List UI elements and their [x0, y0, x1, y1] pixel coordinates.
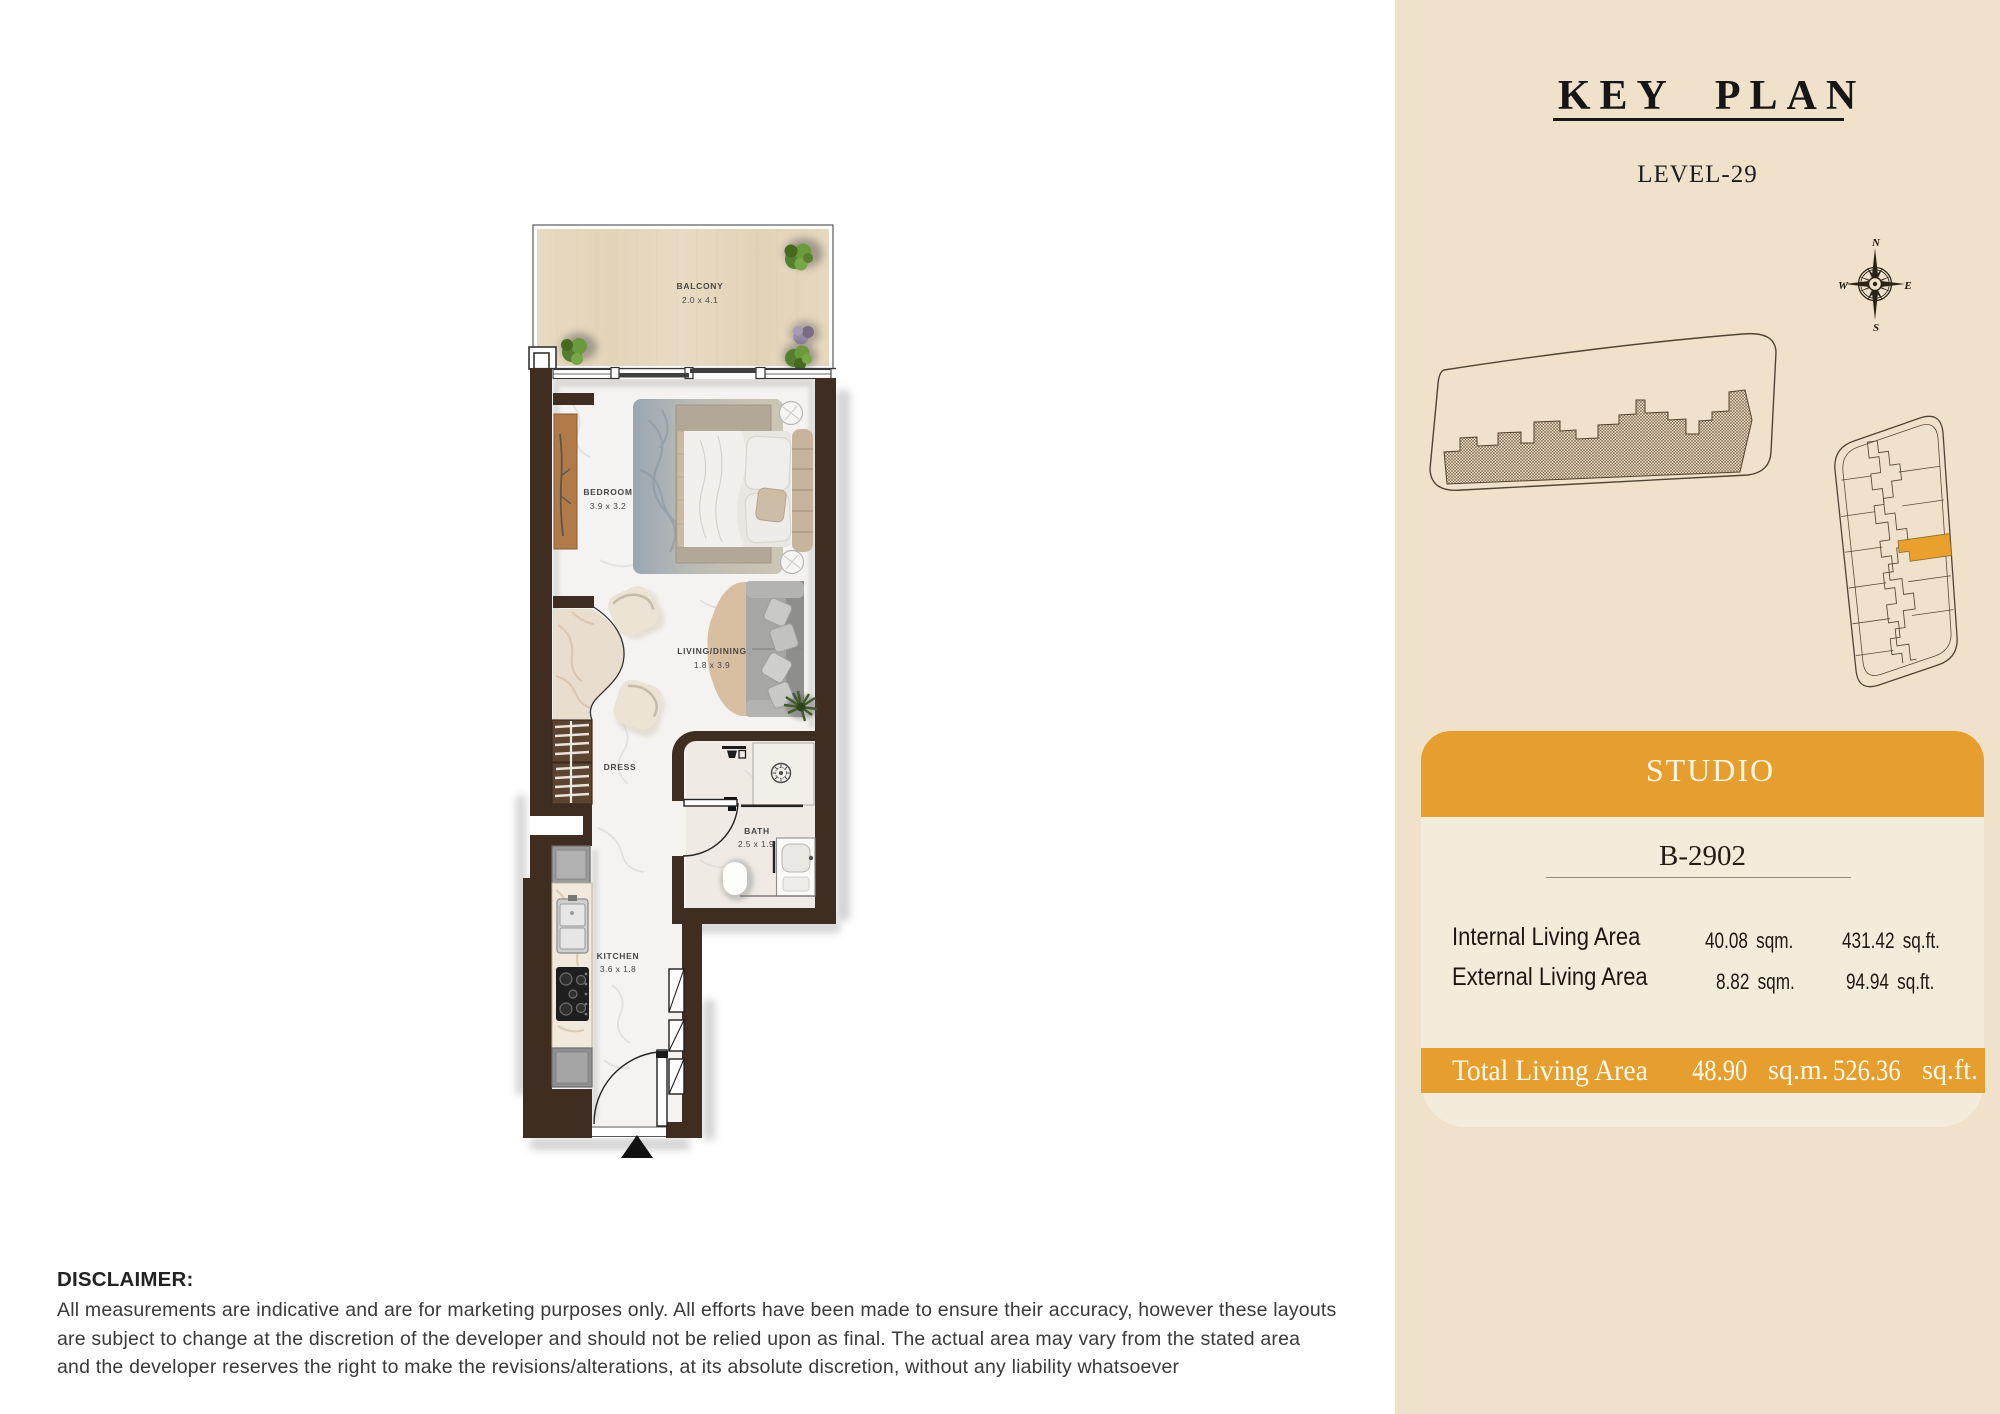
svg-text:LIVING/DINING: LIVING/DINING — [677, 646, 747, 656]
svg-text:E: E — [1903, 280, 1911, 292]
svg-text:DRESS: DRESS — [604, 762, 637, 772]
svg-text:BATH: BATH — [744, 826, 770, 836]
svg-text:KITCHEN: KITCHEN — [597, 951, 640, 961]
svg-text:W: W — [1838, 280, 1849, 292]
svg-text:3.6 x 1.8: 3.6 x 1.8 — [600, 964, 636, 974]
svg-text:N: N — [1871, 237, 1881, 249]
svg-text:1.8 x 3.9: 1.8 x 3.9 — [694, 660, 730, 670]
svg-text:2.0 x 4.1: 2.0 x 4.1 — [682, 295, 718, 305]
svg-text:BALCONY: BALCONY — [677, 281, 724, 291]
svg-text:3.9 x 3.2: 3.9 x 3.2 — [590, 501, 626, 511]
svg-text:BEDROOM: BEDROOM — [583, 487, 632, 497]
svg-text:2.5 x 1.9: 2.5 x 1.9 — [738, 839, 774, 849]
svg-text:S: S — [1873, 322, 1879, 332]
